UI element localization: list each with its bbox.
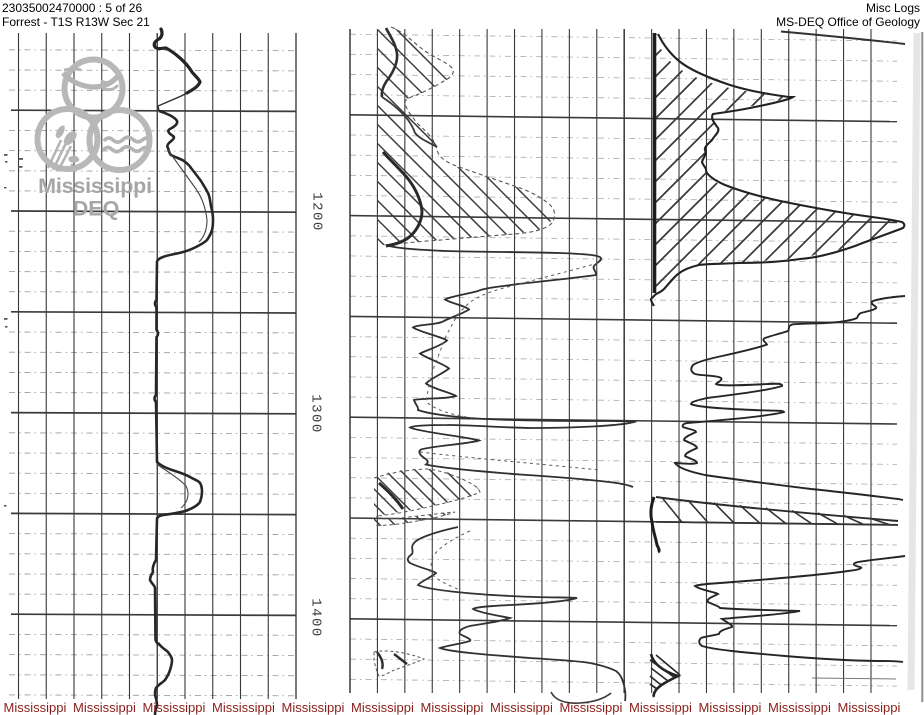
svg-text:Mississippi: Mississippi [38, 174, 152, 198]
svg-text:1200: 1200 [308, 192, 324, 232]
svg-text:1300: 1300 [307, 394, 323, 434]
svg-text:1400: 1400 [307, 598, 323, 638]
svg-text:DEQ: DEQ [73, 197, 120, 221]
